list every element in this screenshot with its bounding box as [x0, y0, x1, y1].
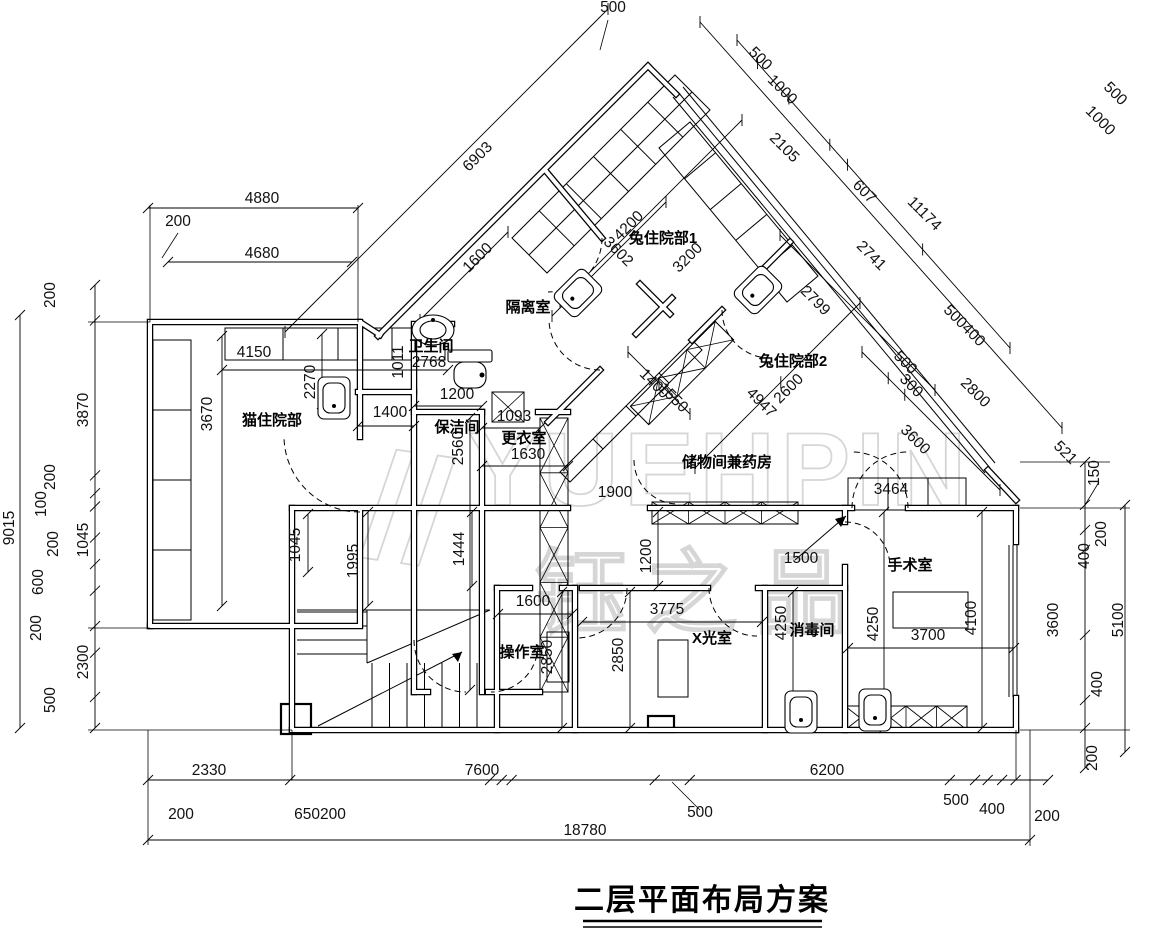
- dim-label: 4100: [963, 600, 980, 635]
- dim-label: 2300: [75, 644, 92, 679]
- dim-label: 200: [1084, 745, 1101, 771]
- dim-label: 607: [849, 177, 879, 207]
- dim-label: 4680: [245, 245, 280, 262]
- room-label: 兔住院部2: [758, 352, 827, 370]
- sink-fixture: [552, 267, 604, 319]
- dim-label: 500: [42, 687, 59, 713]
- dim-label: 150: [1086, 460, 1103, 486]
- dim-label: 200: [168, 806, 194, 823]
- title-block: 二层平面布局方案: [574, 883, 830, 927]
- room-label: X光室: [692, 629, 732, 647]
- room-label: 手术室: [887, 556, 932, 574]
- dim-label: 400: [1089, 671, 1106, 697]
- room-label: 消毒间: [789, 621, 834, 639]
- dim-label: 5100: [1110, 602, 1127, 637]
- dim-label: 1444: [451, 531, 468, 566]
- sink-fixture: [732, 264, 784, 316]
- dim-label: 1093: [497, 408, 531, 425]
- dim-label: 7600: [465, 762, 500, 779]
- dim-label: 600: [30, 569, 47, 595]
- room-label: 猫住院部: [242, 411, 302, 429]
- dim-label: 500: [745, 44, 776, 75]
- dim-label: 2600: [771, 370, 808, 407]
- dim-label: 200: [42, 464, 59, 490]
- dim-label: 1045: [287, 528, 304, 562]
- dim-label: 3700: [911, 627, 946, 644]
- dim-label: 3670: [199, 396, 216, 431]
- dim-label: 1600: [516, 593, 551, 610]
- dim-label: 650200: [294, 806, 346, 823]
- sink-fixture: [785, 691, 817, 733]
- dim-label: 2270: [302, 364, 319, 399]
- room-label: 操作室: [499, 643, 544, 661]
- room-label: 保洁间: [433, 418, 479, 436]
- dim-label: 500: [600, 0, 626, 16]
- dim-label: 3464: [874, 481, 909, 498]
- dim-label: 6903: [460, 139, 496, 175]
- dim-label: 1995: [345, 544, 362, 578]
- drawing-title: 二层平面布局方案: [574, 883, 830, 917]
- dim-label: 11174: [904, 193, 945, 234]
- dim-label: 2741: [853, 238, 889, 274]
- dim-label: 2105: [766, 130, 802, 166]
- dim-label: 500: [687, 804, 713, 821]
- dim-label: 9015: [1, 511, 18, 545]
- dim-label: 4880: [245, 190, 280, 207]
- dim-label: 4250: [773, 605, 790, 640]
- dim-label: 200: [165, 213, 191, 230]
- room-label: 储物间兼药房: [682, 453, 772, 471]
- room-label: 更衣室: [501, 429, 546, 447]
- sink-fixture: [318, 377, 350, 419]
- dim-label: 200: [42, 282, 59, 308]
- dim-label: 200: [28, 615, 45, 641]
- dim-label: 3775: [650, 601, 684, 618]
- dim-label: 100: [33, 491, 50, 517]
- room-label: 卫生间: [408, 337, 453, 355]
- dim-label: 1000: [764, 72, 801, 109]
- dim-label: 521: [1050, 438, 1080, 468]
- dim-label: 1000: [1082, 103, 1119, 140]
- dim-label: 500: [943, 792, 969, 809]
- dim-label: 500: [1100, 79, 1131, 110]
- dim-label: 1200: [440, 386, 475, 403]
- floorplan-canvas: YUEHPIN 钰之品 // 4880200468020038709015200…: [0, 0, 1153, 940]
- dim-label: 2800: [957, 375, 994, 412]
- dim-label: 4150: [237, 344, 272, 361]
- dim-label: 500400: [940, 302, 989, 351]
- door-swing-arc: [414, 640, 466, 692]
- dim-label: 4250: [865, 606, 882, 641]
- floorplan-drawing: YUEHPIN 钰之品 // 4880200468020038709015200…: [0, 0, 1153, 940]
- dim-label: 200: [1093, 521, 1110, 547]
- dim-label: 2799: [797, 283, 833, 319]
- door-swing-arc: [284, 436, 360, 512]
- door-swing-arc: [549, 319, 600, 370]
- dim-label: 6200: [810, 762, 845, 779]
- dim-label: 1045: [75, 523, 92, 557]
- dim-label: 2330: [192, 762, 227, 779]
- room-label: 隔离室: [505, 298, 550, 316]
- dim-label: 2768: [412, 354, 446, 371]
- dim-label: 200: [45, 531, 62, 557]
- sink-fixture: [859, 689, 891, 731]
- dim-label: 400: [1076, 543, 1093, 569]
- dim-label: 2850: [610, 637, 627, 672]
- dim-label: 1900: [598, 484, 633, 501]
- door-swing-arc: [722, 310, 770, 358]
- dim-label: 1400: [373, 404, 408, 421]
- dim-label: 400: [979, 801, 1005, 818]
- dim-label: 3600: [1045, 602, 1062, 637]
- dim-label: 1630: [511, 446, 546, 463]
- dim-label: 200: [1034, 808, 1060, 825]
- dim-label: 18780: [563, 822, 606, 839]
- dim-label: 3870: [75, 392, 92, 427]
- dim-label: 1200: [638, 538, 655, 573]
- dim-label: 1500: [784, 550, 819, 567]
- room-label: 兔住院部1: [628, 229, 697, 247]
- dim-label: 1011: [390, 345, 407, 378]
